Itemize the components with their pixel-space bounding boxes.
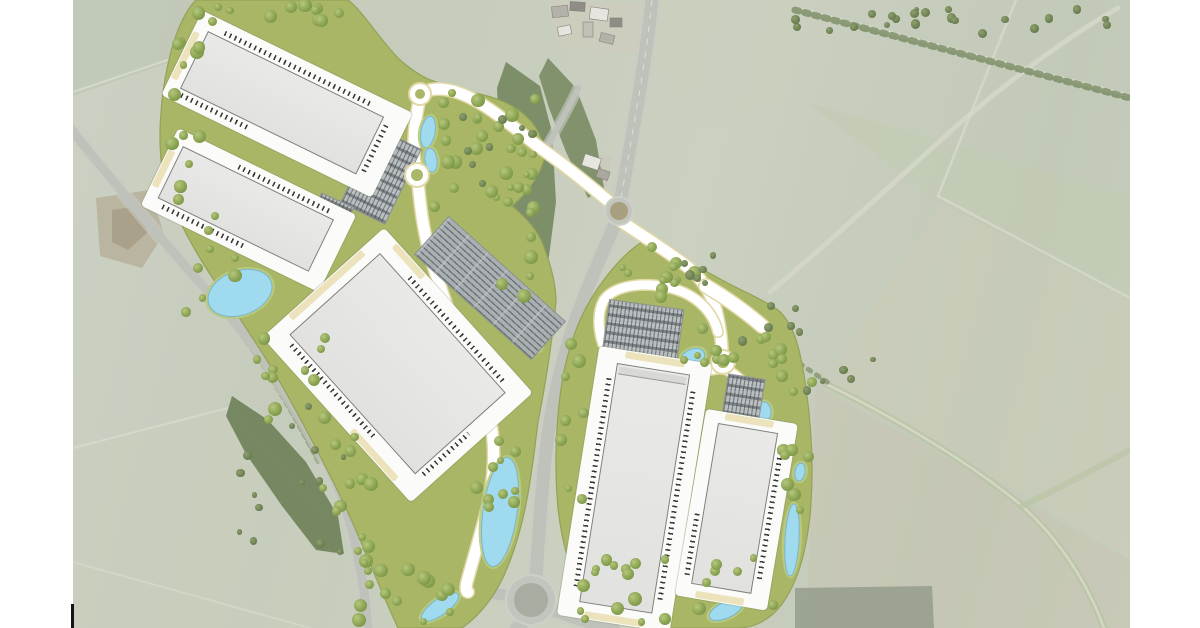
tree <box>364 477 378 491</box>
tree <box>193 41 206 54</box>
tree <box>519 125 525 131</box>
tree <box>192 6 205 19</box>
tree <box>226 7 233 14</box>
tree <box>884 22 890 28</box>
tree <box>285 1 297 13</box>
tree <box>401 563 415 577</box>
tree <box>1030 24 1039 33</box>
tree <box>781 478 794 491</box>
roundabout-island <box>514 583 548 617</box>
tree <box>796 506 804 514</box>
tree <box>364 567 372 575</box>
tree <box>173 194 184 205</box>
tree <box>236 469 244 477</box>
tree <box>172 38 184 50</box>
tree <box>193 130 206 143</box>
tree <box>498 115 507 124</box>
tree <box>503 197 513 207</box>
tree <box>702 280 708 286</box>
left-margin <box>0 0 73 628</box>
tree <box>1073 5 1081 13</box>
tree <box>791 15 800 24</box>
tree <box>581 615 588 622</box>
tree <box>420 618 427 625</box>
tree <box>438 118 450 130</box>
tree <box>951 17 959 25</box>
tree <box>624 269 632 277</box>
tree <box>767 302 775 310</box>
tree <box>470 481 483 494</box>
tree <box>528 130 537 139</box>
tree <box>448 89 456 97</box>
tree <box>669 262 678 271</box>
tree <box>446 608 453 615</box>
roundabout-island <box>411 169 423 181</box>
tree <box>699 266 707 274</box>
tree <box>777 354 787 364</box>
tree <box>526 272 534 280</box>
tree <box>471 94 484 107</box>
tree <box>506 144 515 153</box>
tree <box>174 180 186 192</box>
tree <box>485 185 498 198</box>
tree <box>655 290 668 303</box>
tree <box>289 423 295 429</box>
tree <box>320 333 330 343</box>
tree <box>764 323 773 332</box>
tree <box>694 275 701 282</box>
tree <box>352 613 366 627</box>
tree <box>228 269 241 282</box>
tree <box>486 143 493 150</box>
roundabout-site-west <box>406 164 428 186</box>
farm-building <box>570 1 586 11</box>
tree <box>555 434 567 446</box>
tree <box>911 19 920 28</box>
roundabout-existing-mid <box>606 198 632 224</box>
tree <box>697 323 708 334</box>
tree <box>479 180 486 187</box>
tree <box>768 600 778 610</box>
tree <box>345 445 356 456</box>
tree <box>728 352 739 363</box>
tree <box>380 588 391 599</box>
tree <box>211 212 219 220</box>
roundabout-site-north <box>410 84 430 104</box>
tree <box>622 568 634 580</box>
farm-building <box>551 5 568 18</box>
tree <box>168 88 181 101</box>
tree <box>628 592 642 606</box>
tree <box>780 450 789 459</box>
tree <box>945 6 952 13</box>
tree <box>469 161 476 168</box>
tree <box>264 10 277 23</box>
tree <box>180 61 187 68</box>
tree <box>577 607 584 614</box>
right-margin <box>1130 0 1200 628</box>
tree <box>255 504 263 512</box>
tree <box>179 131 188 140</box>
tree <box>185 160 193 168</box>
tree <box>193 263 203 273</box>
tree <box>250 537 257 544</box>
tree <box>700 358 709 367</box>
roundabout-island <box>610 202 628 220</box>
masterplan-canvas <box>0 0 1200 628</box>
tree <box>181 307 190 316</box>
tree <box>258 332 271 345</box>
tree <box>243 451 252 460</box>
tree <box>231 254 239 262</box>
tree <box>252 492 258 498</box>
tree <box>261 372 269 380</box>
tree <box>301 366 310 375</box>
field-north-of-road <box>650 0 795 128</box>
tree <box>868 10 876 18</box>
tree <box>474 113 483 122</box>
tree <box>362 540 375 553</box>
tree <box>204 226 213 235</box>
tree <box>441 135 451 145</box>
tree <box>578 408 588 418</box>
tree <box>318 411 331 424</box>
tree <box>577 494 586 503</box>
woodland-block-southeast <box>795 586 934 628</box>
tree <box>488 462 498 472</box>
tree <box>792 305 799 312</box>
tree <box>438 97 449 108</box>
tree <box>299 480 305 486</box>
tree <box>888 12 896 20</box>
tree <box>237 529 243 535</box>
tree <box>1001 16 1008 23</box>
tree <box>476 130 488 142</box>
tree <box>524 250 537 263</box>
tree <box>787 322 794 329</box>
tree <box>330 439 341 450</box>
tree <box>692 602 705 615</box>
tree <box>572 354 586 368</box>
tree <box>199 294 207 302</box>
tree <box>350 433 358 441</box>
tree <box>496 278 508 290</box>
tree <box>341 454 346 459</box>
tree <box>761 332 771 342</box>
tree <box>776 370 787 381</box>
survey-tick <box>71 604 74 628</box>
tree <box>316 477 323 484</box>
tree <box>441 583 455 597</box>
farm-building <box>583 22 593 37</box>
tree <box>702 578 711 587</box>
roundabout-island <box>415 89 425 99</box>
tree <box>610 561 619 570</box>
tree <box>374 564 388 578</box>
tree <box>334 8 344 18</box>
roundabout-existing-south <box>507 576 555 624</box>
tree <box>826 27 833 34</box>
tree <box>417 571 430 584</box>
tree <box>796 328 803 335</box>
tree <box>530 94 540 104</box>
tree <box>505 108 518 121</box>
tree <box>508 496 519 507</box>
tree <box>591 569 599 577</box>
tree <box>315 14 328 27</box>
farm-building <box>589 7 608 21</box>
tree <box>529 151 537 159</box>
tree <box>449 183 459 193</box>
tree <box>337 549 343 555</box>
farm-building <box>610 18 622 27</box>
tree <box>733 567 742 576</box>
tree <box>870 357 876 363</box>
tree <box>647 242 657 252</box>
hedgerow <box>795 10 1130 98</box>
tree <box>441 155 455 169</box>
tree <box>165 137 178 150</box>
tree <box>498 489 508 499</box>
